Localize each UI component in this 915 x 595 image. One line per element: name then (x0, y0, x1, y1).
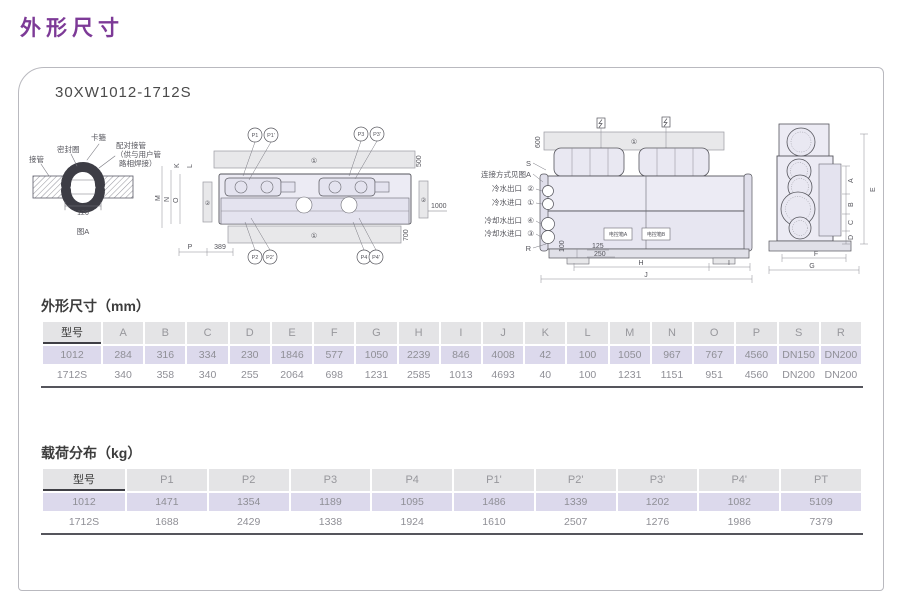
model-label: 30XW1012-1712S (55, 84, 192, 101)
svg-text:①: ① (311, 232, 317, 240)
chilled-water-outlet-label: 冷水出口 (492, 183, 522, 193)
table-cell: 40 (525, 366, 565, 384)
table-cell: 1471 (127, 493, 207, 511)
column-header: P4' (699, 469, 779, 491)
dim-125: 125 (592, 243, 604, 250)
pad-callout: ② (205, 200, 211, 207)
dim-I: I (728, 260, 730, 267)
table-cell: 846 (441, 346, 481, 364)
table-cell: 4008 (483, 346, 523, 364)
table-cell: 767 (694, 346, 734, 364)
svg-text:（供与用户管: （供与用户管 (116, 149, 161, 159)
table-cell: DN150 (779, 346, 819, 364)
side-view: ① 600 (481, 117, 752, 283)
column-header: N (652, 322, 692, 344)
table-cell: 2064 (272, 366, 312, 384)
header-row: 型号P1P2P3P4P1'P2'P3'P4'PT (43, 469, 861, 491)
figure-a-caption: 图A (77, 227, 90, 236)
dimensions-table-wrap: 型号ABCDEFGHIJKLMNOPSR 1012284316334230184… (41, 320, 863, 388)
dim-J: J (644, 272, 648, 279)
column-header: E (272, 322, 312, 344)
dim-K: K (174, 163, 181, 168)
dim-100: 100 (559, 240, 566, 252)
column-header: P1' (454, 469, 534, 491)
table-cell: 358 (145, 366, 185, 384)
table-cell: DN200 (821, 346, 861, 364)
column-header: G (356, 322, 396, 344)
p4-callout: P4 (361, 255, 368, 261)
column-header: P (736, 322, 776, 344)
svg-text:②: ② (421, 197, 427, 204)
column-header: P3' (618, 469, 698, 491)
table-cell: 2507 (536, 513, 616, 531)
table-cell: 1082 (699, 493, 779, 511)
table-cell: 1050 (610, 346, 650, 364)
load-section-title: 载荷分布（kg） (41, 443, 141, 463)
seal-label: 密封圈 (57, 144, 80, 154)
table-cell: 1231 (356, 366, 396, 384)
table-cell: 577 (314, 346, 354, 364)
content-panel: 30XW1012-1712S 接管 密封圈 卡箍 (18, 67, 884, 591)
table-cell: 1231 (610, 366, 650, 384)
p2p-callout: P2' (266, 255, 274, 261)
table-cell: 1189 (291, 493, 371, 511)
clamp-label: 卡箍 (91, 132, 106, 142)
p1-callout: P1 (252, 133, 259, 139)
table-cell: 340 (103, 366, 143, 384)
table-cell: 1276 (618, 513, 698, 531)
dim-F: F (814, 251, 818, 258)
pipe-label: 接管 (29, 154, 44, 164)
table-row: 1712S16882429133819241610250712761986737… (43, 513, 861, 531)
table-cell: 951 (694, 366, 734, 384)
column-header: C (187, 322, 227, 344)
table-cell: 4693 (483, 366, 523, 384)
p1p-callout: P1' (267, 133, 275, 139)
svg-text:③: ③ (527, 229, 534, 238)
table-cell: 1354 (209, 493, 289, 511)
table-cell: 1338 (291, 513, 371, 531)
table-cell: 334 (187, 346, 227, 364)
mating-pipe-label: 配对接管 (116, 140, 146, 150)
column-header: 型号 (43, 469, 125, 491)
table-cell: 1012 (43, 493, 125, 511)
table-cell: 340 (187, 366, 227, 384)
dim-H: H (638, 260, 643, 267)
connection-note: 连接方式见图A (481, 169, 531, 179)
table-cell: 284 (103, 346, 143, 364)
coupling-detail-figure: 接管 密封圈 卡箍 配对接管 （供与用户管 路相焊接） 120 图A (29, 132, 161, 236)
table-cell: 1013 (441, 366, 481, 384)
table-cell: DN200 (821, 366, 861, 384)
port-labels: S 连接方式见图A 冷水出口 ② 冷水进口 ① 冷却水出口 ④ 冷却水进口 ③ … (481, 159, 534, 253)
table-cell: 2585 (399, 366, 439, 384)
dim-P: P (188, 244, 193, 251)
label-R: R (526, 244, 532, 253)
column-header: P3 (291, 469, 371, 491)
column-header: L (567, 322, 607, 344)
dimensions-section-title: 外形尺寸（mm） (41, 296, 150, 316)
table-cell: 1151 (652, 366, 692, 384)
dim-C: C (848, 220, 855, 225)
table-cell: 1339 (536, 493, 616, 511)
table-cell: 1095 (372, 493, 452, 511)
table-cell: 4560 (736, 346, 776, 364)
p3-callout: P3 (358, 132, 365, 138)
dim-600: 600 (535, 136, 542, 148)
column-header: P1 (127, 469, 207, 491)
dimensions-table: 型号ABCDEFGHIJKLMNOPSR 1012284316334230184… (41, 320, 863, 386)
column-header: 型号 (43, 322, 101, 344)
table-row: 1012147113541189109514861339120210825109 (43, 493, 861, 511)
column-header: D (230, 322, 270, 344)
table-cell: 1012 (43, 346, 101, 364)
table-cell: 698 (314, 366, 354, 384)
header-row: 型号ABCDEFGHIJKLMNOPSR (43, 322, 861, 344)
column-header: P2' (536, 469, 616, 491)
page: 外形尺寸 30XW1012-1712S 接管 密封圈 (0, 0, 915, 595)
dim-G: G (809, 263, 814, 270)
column-header: I (441, 322, 481, 344)
dim-389: 389 (214, 244, 226, 251)
table-cell: 100 (567, 346, 607, 364)
dim-B: B (848, 202, 855, 207)
dim-1000: 1000 (431, 203, 447, 210)
dim-D: D (848, 235, 855, 240)
dim-A: A (848, 178, 855, 183)
table-cell: 230 (230, 346, 270, 364)
svg-text:①: ① (631, 138, 637, 146)
column-header: P4 (372, 469, 452, 491)
svg-text:①: ① (527, 198, 534, 207)
table-cell: 316 (145, 346, 185, 364)
rail-callout: ① (311, 157, 317, 165)
table-cell: 1924 (372, 513, 452, 531)
chilled-water-inlet-label: 冷水进口 (492, 197, 522, 207)
table-cell: 2239 (399, 346, 439, 364)
table-cell: 5109 (781, 493, 861, 511)
dim-120: 120 (77, 210, 89, 217)
plan-view: ① 500 ① 700 ② ② 1000 (155, 127, 447, 264)
column-header: PT (781, 469, 861, 491)
table-cell: 967 (652, 346, 692, 364)
column-header: M (610, 322, 650, 344)
column-header: J (483, 322, 523, 344)
table-cell: 2429 (209, 513, 289, 531)
dim-N: N (164, 197, 171, 202)
label-S: S (526, 159, 531, 168)
svg-text:②: ② (527, 184, 534, 193)
dim-L: L (187, 164, 194, 168)
technical-drawing: 接管 密封圈 卡箍 配对接管 （供与用户管 路相焊接） 120 图A ① 500… (19, 106, 883, 296)
dim-M: M (155, 195, 162, 201)
table-cell: 4560 (736, 366, 776, 384)
dim-O: O (173, 197, 180, 203)
table-cell: 1202 (618, 493, 698, 511)
p2-callout: P2 (252, 255, 259, 261)
table-cell: 100 (567, 366, 607, 384)
control-box-b-label: 电控箱B (647, 231, 666, 238)
page-title: 外形尺寸 (20, 12, 124, 42)
table-cell: 1986 (699, 513, 779, 531)
table-cell: DN200 (779, 366, 819, 384)
table-cell: 1712S (43, 366, 101, 384)
control-box-a-label: 电控箱A (609, 231, 628, 238)
load-table-wrap: 型号P1P2P3P4P1'P2'P3'P4'PT 101214711354118… (41, 467, 863, 535)
column-header: H (399, 322, 439, 344)
svg-text:④: ④ (527, 216, 534, 225)
table-row: 1712S34035834025520646981231258510134693… (43, 366, 861, 384)
table-cell: 1050 (356, 346, 396, 364)
table-row: 1012284316334230184657710502239846400842… (43, 346, 861, 364)
p4p-callout: P4' (372, 255, 380, 261)
dim-500: 500 (416, 155, 423, 167)
column-header: B (145, 322, 185, 344)
column-header: K (525, 322, 565, 344)
table-cell: 1486 (454, 493, 534, 511)
table-cell: 1610 (454, 513, 534, 531)
table-cell: 1846 (272, 346, 312, 364)
table-cell: 255 (230, 366, 270, 384)
column-header: F (314, 322, 354, 344)
column-header: R (821, 322, 861, 344)
table-cell: 42 (525, 346, 565, 364)
dim-700: 700 (403, 229, 410, 241)
column-header: S (779, 322, 819, 344)
column-header: O (694, 322, 734, 344)
column-header: P2 (209, 469, 289, 491)
cooling-water-outlet-label: 冷却水出口 (485, 215, 523, 225)
svg-text:路相焊接）: 路相焊接） (119, 158, 157, 168)
column-header: A (103, 322, 143, 344)
table-cell: 7379 (781, 513, 861, 531)
table-cell: 1688 (127, 513, 207, 531)
dim-E: E (870, 187, 877, 192)
load-distribution-table: 型号P1P2P3P4P1'P2'P3'P4'PT 101214711354118… (41, 467, 863, 533)
cooling-water-inlet-label: 冷却水进口 (485, 228, 523, 238)
end-view: A B C D E F G (769, 124, 877, 274)
table-cell: 1712S (43, 513, 125, 531)
p3p-callout: P3' (373, 132, 381, 138)
